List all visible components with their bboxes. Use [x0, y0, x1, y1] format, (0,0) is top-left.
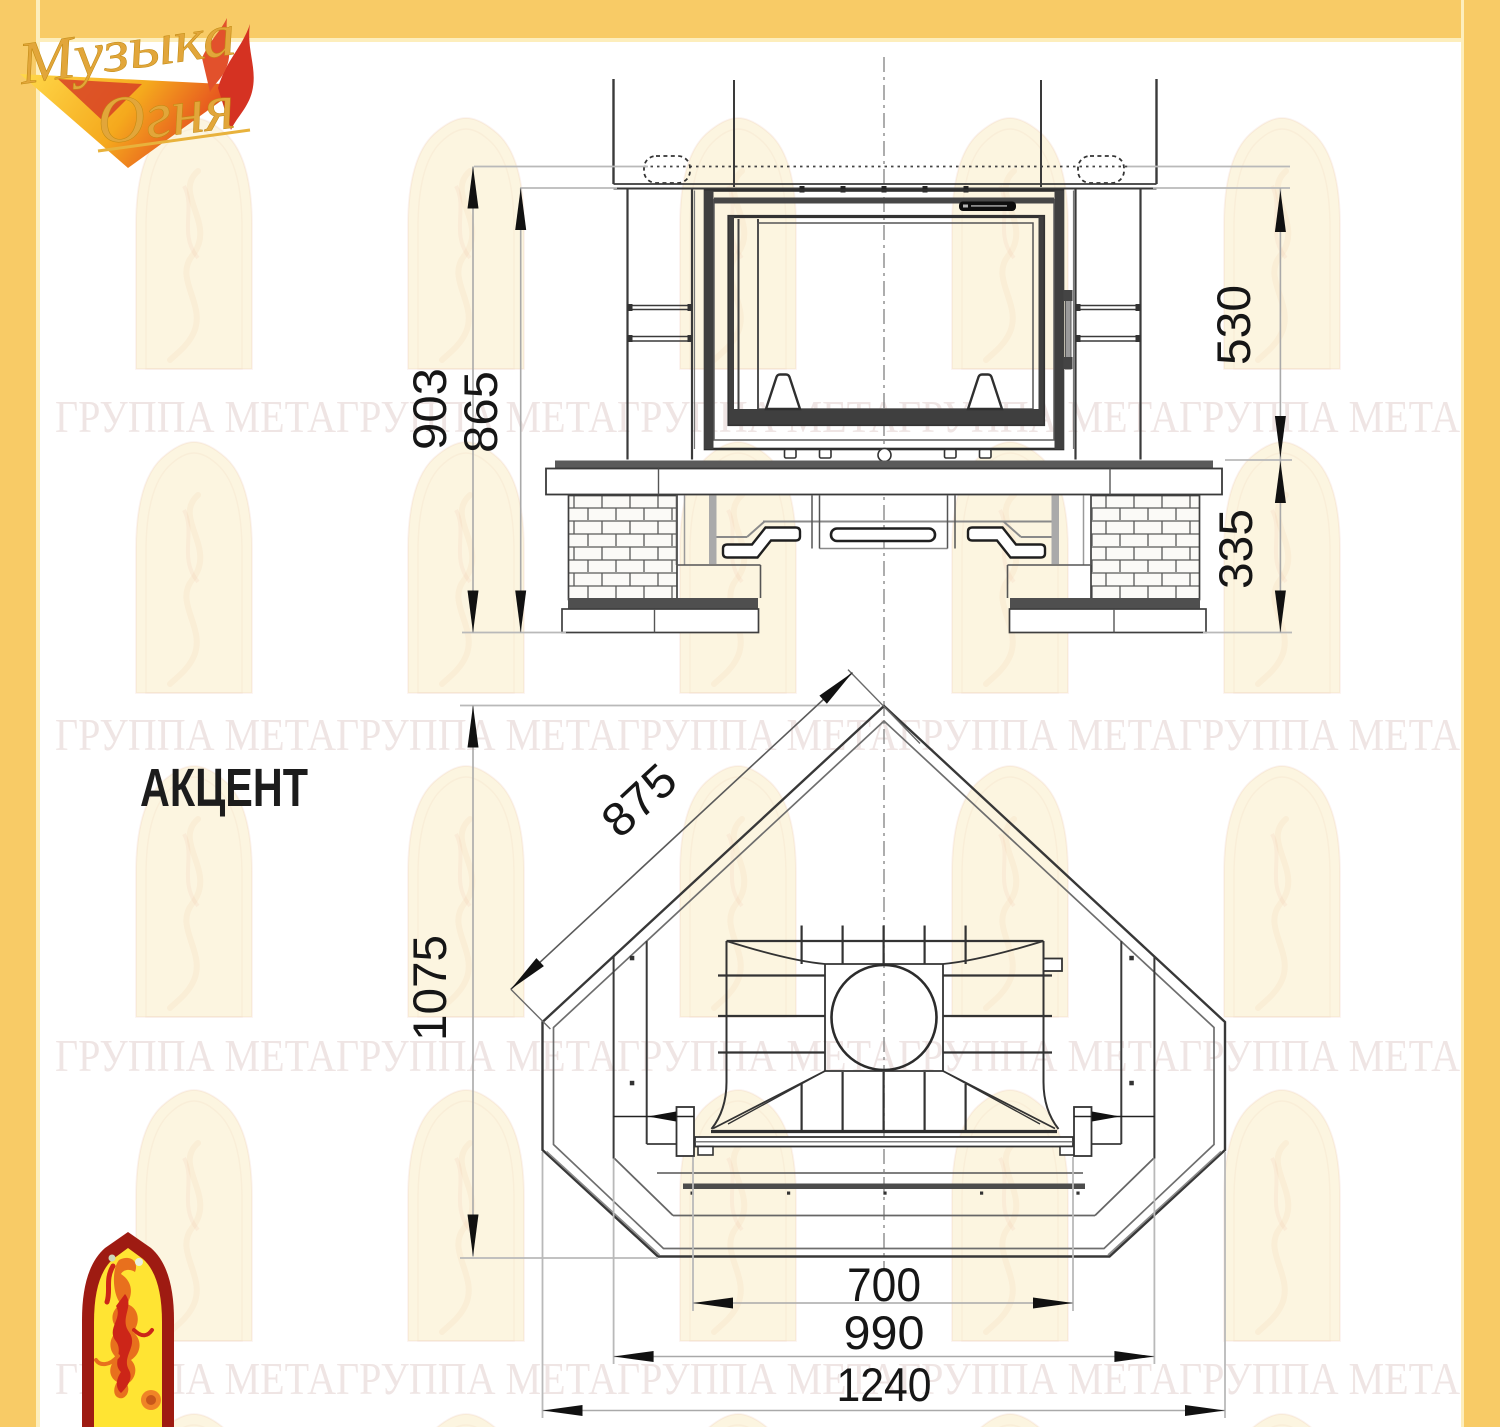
svg-text:865: 865: [454, 371, 507, 453]
svg-text:1240: 1240: [837, 1358, 932, 1411]
svg-text:903: 903: [403, 368, 456, 450]
svg-text:АКЦЕНТ: АКЦЕНТ: [140, 758, 308, 818]
svg-text:1075: 1075: [403, 935, 456, 1041]
svg-text:335: 335: [1209, 509, 1262, 589]
svg-text:ГРУППА МЕТАГРУППА МЕТАГРУППА М: ГРУППА МЕТАГРУППА МЕТАГРУППА МЕТАГРУППА …: [55, 1353, 1460, 1404]
svg-text:700: 700: [847, 1258, 921, 1311]
svg-text:530: 530: [1207, 285, 1260, 365]
svg-text:ГРУППА МЕТАГРУППА МЕТАГРУППА М: ГРУППА МЕТАГРУППА МЕТАГРУППА МЕТАГРУППА …: [55, 1030, 1460, 1081]
svg-text:ГРУППА МЕТАГРУППА МЕТАГРУППА М: ГРУППА МЕТАГРУППА МЕТАГРУППА МЕТАГРУППА …: [55, 709, 1460, 760]
svg-text:990: 990: [844, 1306, 925, 1359]
